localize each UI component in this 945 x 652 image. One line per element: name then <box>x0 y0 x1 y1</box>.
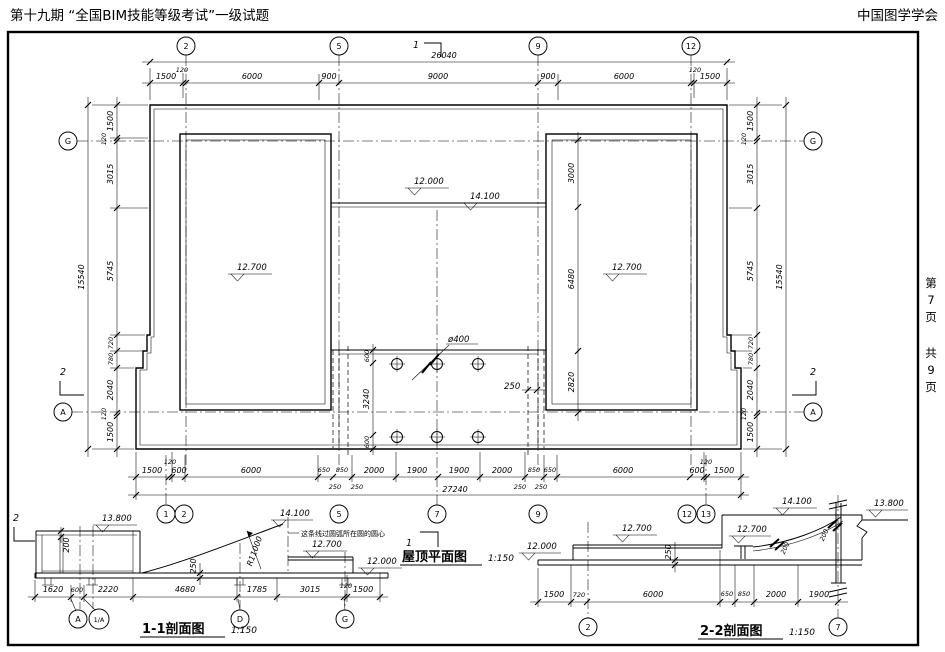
plan-title-text: 屋顶平面图 <box>402 550 467 565</box>
dim-label: 600 <box>171 466 186 475</box>
grid-bubble: 13 <box>697 505 715 523</box>
plan-left-dimensions: 1500 120 3015 5745 720 780 2040 120 1500… <box>77 97 148 457</box>
section-mark-label: 1 <box>406 538 412 549</box>
dim-label: 6000 <box>613 466 633 475</box>
elevation-marker: 12.700 <box>303 540 347 558</box>
dim-label: 650 <box>318 466 330 474</box>
elevation-marker: 12.000 <box>358 557 402 575</box>
grid-bubble: 1 <box>157 505 175 523</box>
column-diameter-callout: ø400 <box>412 335 478 380</box>
dim-label: 1500 <box>746 111 755 131</box>
dim-label: 850 <box>336 466 348 474</box>
column-marker <box>429 429 445 445</box>
building-parapet-inner <box>140 109 737 445</box>
s11-grid-bubbles: A 1/A D G <box>69 599 354 629</box>
grid-bubble: 9 <box>529 37 547 55</box>
grid-bubble: 2 <box>175 505 193 523</box>
section-2-mark-left: 2 <box>60 367 84 395</box>
grid-bubble: 2 <box>177 37 195 55</box>
dim-label: 600 <box>363 436 371 448</box>
dim-label: 650 <box>721 590 733 598</box>
elevation-label: 12.000 <box>414 177 444 187</box>
section-mark-label: 2 <box>13 513 19 524</box>
dim-label: 850 <box>528 466 540 474</box>
plan-bottom-dimensions: 1500 120 600 6000 650 850 2000 1900 1900… <box>128 452 749 500</box>
section-1-1: R11000 这条线过圆弧所在圆的圆心 13.800 14.100 12.700… <box>28 509 402 637</box>
plan-top-dimensions: 26040 1500 120 6000 900 9000 900 6000 12… <box>142 51 735 100</box>
grid-bubble: G <box>336 610 354 628</box>
s11-arc-roof <box>142 524 283 573</box>
grid-bubble-label: A <box>75 615 81 624</box>
roof-plan: ø400 250 12.000 14.100 12.700 12.700 <box>13 37 822 565</box>
section-title-text: 1-1剖面图 <box>142 621 205 637</box>
grid-bubble: A <box>69 610 87 628</box>
dim-label: 1500 <box>746 422 755 442</box>
dim-label: 1900 <box>407 466 427 475</box>
grid-bubble: G <box>59 132 77 150</box>
dim-label: 120 <box>740 133 748 145</box>
dim-label: 1500 <box>106 111 115 131</box>
dim-label: 27240 <box>442 485 467 494</box>
section-title-text: 2-2剖面图 <box>700 623 763 639</box>
portico-dimensions: 600 3240 600 <box>362 344 376 455</box>
tower-interior-dimensions: 3000 6480 2820 <box>567 132 581 421</box>
dim-label: 2000 <box>766 590 786 599</box>
dim-label: 1500 <box>700 72 720 81</box>
dim-label: 250 <box>329 483 341 491</box>
dim-label: 3015 <box>106 164 115 184</box>
dim-label: 1900 <box>449 466 469 475</box>
grid-bubble-label: G <box>65 137 71 146</box>
elevation-marker: 12.700 <box>613 524 657 542</box>
wall-offset-label: 250 <box>504 382 520 392</box>
elevation-label: 12.700 <box>237 263 267 273</box>
grid-bubble-label: 12 <box>682 510 692 519</box>
grid-bubble-label: 12 <box>686 42 696 51</box>
dim-label: 200 <box>779 541 792 556</box>
plan-title: 1 屋顶平面图 1:150 <box>400 532 514 565</box>
s11-bottom-dimensions: 1620 600 2220 4680 1785 3015 120 1500 <box>28 573 388 602</box>
dim-label: 120 <box>176 66 188 74</box>
grid-bubble: 5 <box>330 37 348 55</box>
s11-roof-12700 <box>288 557 353 573</box>
section-scale: 1:150 <box>231 626 257 636</box>
dim-label: 6000 <box>614 72 634 81</box>
grid-bubble-label: 5 <box>336 42 341 51</box>
grid-bubble: 9 <box>529 505 547 523</box>
building-outline <box>136 105 741 449</box>
dim-label: 1500 <box>544 590 564 599</box>
dim-label: 6000 <box>242 72 262 81</box>
section-scale: 1:150 <box>789 628 815 638</box>
grid-centerlines <box>72 55 804 505</box>
dim-label: 1785 <box>247 585 267 594</box>
elevation-marker: 14.100 <box>461 192 505 210</box>
section-mark-label: 2 <box>60 367 66 378</box>
s22-bottom-dimensions: 1500 720 6000 650 850 2000 1900 <box>530 550 848 607</box>
dim-label: 120 <box>740 408 748 420</box>
elevation-marker: 14.100 <box>773 497 817 515</box>
grid-bubble: A <box>54 403 72 421</box>
dim-label: 720 <box>747 337 755 349</box>
dim-label: 1900 <box>809 590 829 599</box>
dim-label: 900 <box>540 72 555 81</box>
grid-bubble: G <box>804 132 822 150</box>
drawing-svg: 第十九期 “全国BIM技能等级考试”一级试题 中国图学学会 第 7 页 共 9 … <box>0 0 945 652</box>
grid-bubble-label: 13 <box>701 510 711 519</box>
section-mark-label: 1 <box>413 40 419 51</box>
grid-bubble-label: 5 <box>336 510 341 519</box>
note-text: 这条线过圆弧所在圆的圆心 <box>301 529 385 538</box>
elevation-label: 12.700 <box>612 263 642 273</box>
dim-label: 2040 <box>106 380 115 400</box>
grid-bubbles: 2 5 9 12 1 2 5 7 9 12 13 G A G A <box>54 37 822 523</box>
section-2-mark-right: 2 <box>792 367 816 395</box>
s22-base-slab <box>538 560 862 565</box>
dim-label: 120 <box>700 458 712 466</box>
dim-label: 250 <box>664 544 673 559</box>
dim-label: 650 <box>544 466 556 474</box>
grid-bubble-label: A <box>60 408 66 417</box>
dim-label: 120 <box>340 582 352 590</box>
dim-label: 780 <box>107 353 115 365</box>
page-number: 第 7 页 共 9 页 <box>925 276 937 394</box>
column-marker <box>389 356 405 372</box>
dim-label: 3015 <box>300 585 320 594</box>
dim-label: 6000 <box>241 466 261 475</box>
elevation-marker: 13.800 <box>866 499 908 517</box>
dim-label: 3240 <box>362 389 371 409</box>
s11-left-structure <box>36 531 140 578</box>
page-char: 页 <box>925 380 937 394</box>
elevation-marker: 12.000 <box>405 177 449 195</box>
grid-bubble-label: 2 <box>181 510 186 519</box>
radius-label: R11000 <box>245 535 264 567</box>
column-marker <box>389 429 405 445</box>
dim-label: 6000 <box>643 590 663 599</box>
grid-bubble: 12 <box>682 37 700 55</box>
elevation-label: 14.100 <box>782 497 812 507</box>
dim-label: 250 <box>514 483 526 491</box>
page-char: 第 <box>925 276 937 290</box>
elevation-label: 12.000 <box>527 542 557 552</box>
page-char: 9 <box>927 363 934 377</box>
dim-label: 850 <box>738 590 750 598</box>
elevation-label: 13.800 <box>874 499 904 509</box>
dim-label: 26040 <box>431 51 456 60</box>
column-diameter-label: ø400 <box>447 335 469 345</box>
dim-label: 15540 <box>77 264 86 289</box>
portico-columns <box>389 356 486 445</box>
dim-label: 1500 <box>353 585 373 594</box>
dim-label: 1500 <box>106 422 115 442</box>
drawing-sheet: 第十九期 “全国BIM技能等级考试”一级试题 中国图学学会 第 7 页 共 9 … <box>0 0 945 652</box>
wall-offset-dim: 250 <box>504 382 545 393</box>
dim-label: 4680 <box>175 585 195 594</box>
section-2-mark-lower-left: 2 <box>13 513 35 541</box>
dim-label: 2000 <box>364 466 384 475</box>
dim-label: 600 <box>363 350 371 362</box>
elevation-marker: 12.700 <box>603 263 647 281</box>
section-mark-label: 2 <box>810 367 816 378</box>
page-char: 7 <box>927 293 934 307</box>
elevation-label: 14.100 <box>280 509 310 519</box>
elevation-label: 13.800 <box>102 514 132 524</box>
page-char: 共 <box>925 346 937 360</box>
dim-label: 600 <box>71 586 83 594</box>
grid-bubble-label: G <box>342 615 348 624</box>
dim-label: 3000 <box>567 163 576 183</box>
elevation-label: 14.100 <box>470 192 500 202</box>
dim-label: 2040 <box>746 380 755 400</box>
page-char: 页 <box>925 310 937 324</box>
elevation-label: 12.700 <box>737 525 767 535</box>
dim-label: 250 <box>535 483 547 491</box>
elevation-marker: 12.700 <box>729 525 771 543</box>
grid-bubble: 7 <box>428 505 446 523</box>
dim-label: 15540 <box>775 264 784 289</box>
grid-bubble-label: 2 <box>585 623 590 632</box>
dim-label: 2000 <box>492 466 512 475</box>
grid-bubble: A <box>804 403 822 421</box>
s11-note: 这条线过圆弧所在圆的圆心 <box>288 529 385 538</box>
grid-bubble-label: G <box>810 137 816 146</box>
s22-title: 2-2剖面图 1:150 <box>698 623 815 639</box>
s22-left-roof <box>573 545 722 560</box>
grid-bubble-label: 1/A <box>94 616 105 624</box>
dim-label: 2220 <box>98 585 118 594</box>
grid-bubble-label: 7 <box>835 623 840 632</box>
grid-bubble-label: 9 <box>535 510 540 519</box>
dim-label: 3015 <box>746 164 755 184</box>
grid-bubble: 5 <box>330 505 348 523</box>
grid-bubble-label: 1 <box>163 510 168 519</box>
elevation-label: 12.700 <box>312 540 342 550</box>
grid-bubble: 1/A <box>89 609 109 629</box>
grid-bubble-label: 7 <box>434 510 439 519</box>
dim-label: 9000 <box>428 72 448 81</box>
elevation-label: 12.000 <box>367 557 397 567</box>
elevation-label: 12.700 <box>622 524 652 534</box>
dim-label: 6480 <box>567 269 576 289</box>
dim-label: 720 <box>573 591 585 599</box>
grid-bubble: 7 <box>829 618 847 636</box>
dim-label: 120 <box>164 458 176 466</box>
grid-bubble-label: D <box>237 615 243 624</box>
elevation-marker: 12.000 <box>519 542 561 560</box>
sheet-title-right: 中国图学学会 <box>857 8 938 24</box>
dim-label: 120 <box>100 408 108 420</box>
grid-bubble-label: 9 <box>535 42 540 51</box>
s22-slab-dim: 250 <box>664 542 678 572</box>
dim-label: 1500 <box>714 466 734 475</box>
elevation-marker: 13.800 <box>93 514 137 532</box>
dim-label: 120 <box>100 133 108 145</box>
dim-label: 200 <box>62 537 71 552</box>
dim-label: 5745 <box>106 261 115 281</box>
column-marker <box>470 429 486 445</box>
dim-label: 2820 <box>567 372 576 392</box>
dim-label: 780 <box>747 353 755 365</box>
grid-bubble-label: 2 <box>183 42 188 51</box>
section-2-2: 200 200 12.000 12.700 14.100 12. <box>519 495 908 639</box>
dim-label: 250 <box>351 483 363 491</box>
dim-label: 200 <box>818 528 831 543</box>
column-marker <box>470 356 486 372</box>
dim-label: 1620 <box>43 585 63 594</box>
s22-arch-column <box>734 546 753 559</box>
dim-label: 900 <box>321 72 336 81</box>
s22-right-roof <box>857 515 908 560</box>
grid-bubble: 12 <box>678 505 696 523</box>
dim-label: 1500 <box>156 72 176 81</box>
plan-right-dimensions: 1500 120 3015 5745 720 780 2040 120 1500… <box>729 97 789 457</box>
s11-slab-dim: 250 <box>189 558 203 585</box>
grid-bubble-label: A <box>810 408 816 417</box>
sheet-title-left: 第十九期 “全国BIM技能等级考试”一级试题 <box>10 7 269 24</box>
dim-label: 600 <box>689 466 704 475</box>
dim-label: 720 <box>107 337 115 349</box>
s11-base-slab <box>35 573 388 585</box>
elevation-marker: 12.700 <box>228 263 272 281</box>
grid-bubble: 2 <box>579 618 597 636</box>
dim-label: 250 <box>189 558 198 573</box>
elevation-marker: 14.100 <box>271 509 313 527</box>
plan-scale: 1:150 <box>488 554 514 564</box>
dim-label: 5745 <box>746 261 755 281</box>
dim-label: 1500 <box>142 466 162 475</box>
